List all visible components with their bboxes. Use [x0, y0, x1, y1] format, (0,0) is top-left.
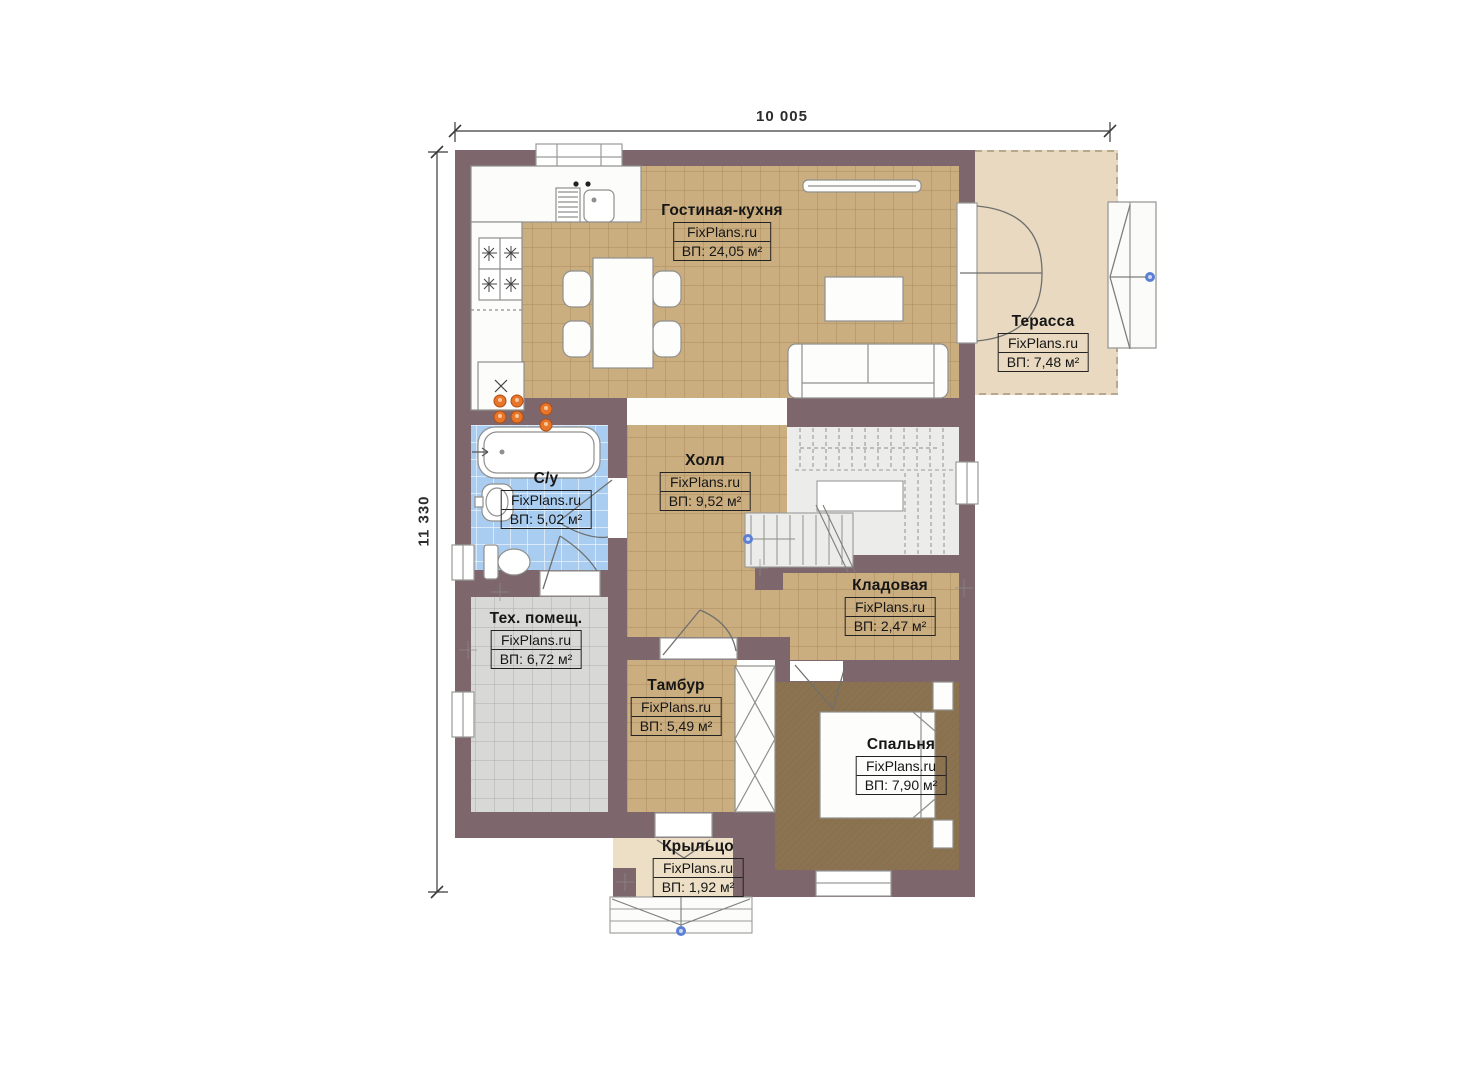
room-brand: FixPlans.ru	[632, 698, 721, 717]
bath-tech-door-opening	[540, 571, 600, 596]
room-brand: FixPlans.ru	[999, 334, 1088, 353]
tech-window	[452, 692, 474, 737]
stair-window	[956, 462, 978, 504]
stove	[479, 238, 522, 300]
room-label-vestibule: Тамбур FixPlans.ru ВП: 5,49 м²	[631, 677, 722, 736]
room-label-bathroom: С/у FixPlans.ru ВП: 5,02 м²	[501, 470, 592, 529]
dimension-top	[449, 122, 1116, 142]
coffee-table	[825, 277, 903, 321]
room-name: С/у	[501, 470, 592, 488]
room-brand: FixPlans.ru	[857, 757, 946, 776]
room-area: ВП: 6,72 м²	[492, 650, 581, 668]
sofa	[788, 344, 948, 398]
hall-vestibule-door-opening	[660, 638, 737, 659]
room-brand: FixPlans.ru	[661, 473, 750, 492]
room-brand: FixPlans.ru	[674, 223, 770, 242]
room-area: ВП: 1,92 м²	[654, 878, 743, 896]
dimension-value-left: 11 330	[416, 495, 433, 546]
closet	[735, 666, 775, 812]
living-hall-opening	[627, 399, 787, 424]
front-door-opening	[655, 813, 712, 837]
room-area: ВП: 7,90 м²	[857, 776, 946, 794]
room-area: ВП: 9,52 м²	[661, 492, 750, 510]
room-area: ВП: 2,47 м²	[846, 617, 935, 635]
room-name: Кладовая	[845, 577, 936, 595]
bathroom-door-opening	[608, 478, 627, 538]
room-area: ВП: 7,48 м²	[999, 353, 1088, 371]
nightstand-bottom	[933, 820, 953, 848]
floor-plan-drawing	[0, 0, 1474, 1080]
room-name: Тамбур	[631, 677, 722, 695]
room-label-porch: Крыльцо FixPlans.ru ВП: 1,92 м²	[653, 838, 744, 897]
bathroom-window	[452, 545, 474, 580]
room-name: Гостиная-кухня	[661, 202, 783, 220]
room-brand: FixPlans.ru	[654, 859, 743, 878]
bedroom-door-opening	[790, 661, 843, 681]
room-name: Крыльцо	[653, 838, 744, 856]
room-name: Холл	[660, 452, 751, 470]
room-area: ВП: 5,49 м²	[632, 717, 721, 735]
room-name: Тех. помещ.	[490, 610, 583, 628]
room-label-hall: Холл FixPlans.ru ВП: 9,52 м²	[660, 452, 751, 511]
room-label-storage: Кладовая FixPlans.ru ВП: 2,47 м²	[845, 577, 936, 636]
floor-plan-page: 10 005 11 330 Гостиная-кухня FixPlans.ru…	[0, 0, 1474, 1080]
nightstand-top	[933, 682, 953, 710]
room-label-bedroom: Спальня FixPlans.ru ВП: 7,90 м²	[856, 736, 947, 795]
room-name: Спальня	[856, 736, 947, 754]
room-brand: FixPlans.ru	[502, 491, 591, 510]
room-name: Терасса	[998, 313, 1089, 331]
room-brand: FixPlans.ru	[492, 631, 581, 650]
room-label-living: Гостиная-кухня FixPlans.ru ВП: 24,05 м²	[661, 202, 783, 261]
bedroom-window	[816, 871, 891, 896]
stair-void	[817, 481, 903, 511]
room-label-terrace: Терасса FixPlans.ru ВП: 7,48 м²	[998, 313, 1089, 372]
room-brand: FixPlans.ru	[846, 598, 935, 617]
dimension-value-top: 10 005	[756, 108, 808, 125]
room-label-tech: Тех. помещ. FixPlans.ru ВП: 6,72 м²	[490, 610, 583, 669]
room-area: ВП: 24,05 м²	[674, 242, 770, 260]
room-area: ВП: 5,02 м²	[502, 510, 591, 528]
stair-lower-flight	[745, 513, 853, 567]
